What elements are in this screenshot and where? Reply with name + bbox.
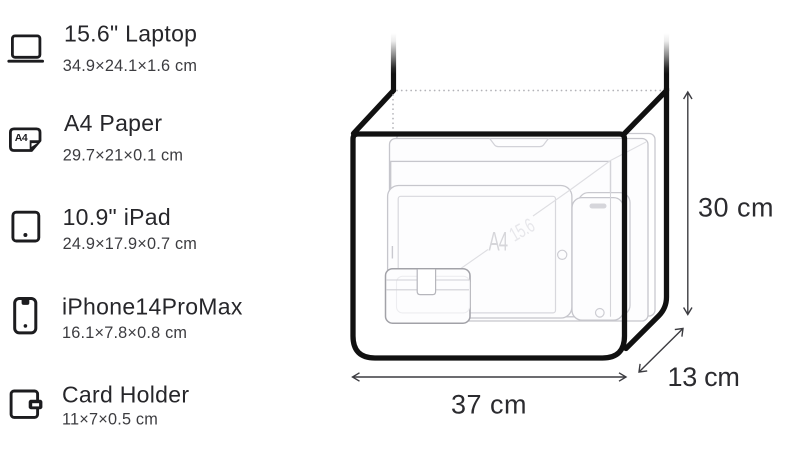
svg-text:15.6" Laptop: 15.6" Laptop [64,21,197,47]
svg-text:16.1×7.8×0.8 cm: 16.1×7.8×0.8 cm [62,324,187,342]
svg-text:10.9" iPad: 10.9" iPad [63,204,171,230]
svg-text:29.7×21×0.1 cm: 29.7×21×0.1 cm [63,147,183,165]
svg-text:iPhone14ProMax: iPhone14ProMax [62,294,243,320]
svg-text:34.9×24.1×1.6 cm: 34.9×24.1×1.6 cm [63,57,197,75]
svg-text:24.9×17.9×0.7 cm: 24.9×17.9×0.7 cm [63,235,197,253]
svg-text:11×7×0.5 cm: 11×7×0.5 cm [62,411,158,429]
svg-text:30 cm: 30 cm [698,193,774,223]
svg-text:13 cm: 13 cm [668,362,740,392]
svg-text:A4: A4 [15,132,28,144]
svg-text:37 cm: 37 cm [451,390,527,420]
svg-text:A4: A4 [489,227,508,257]
svg-text:Card Holder: Card Holder [62,381,189,407]
svg-text:A4 Paper: A4 Paper [64,110,162,136]
